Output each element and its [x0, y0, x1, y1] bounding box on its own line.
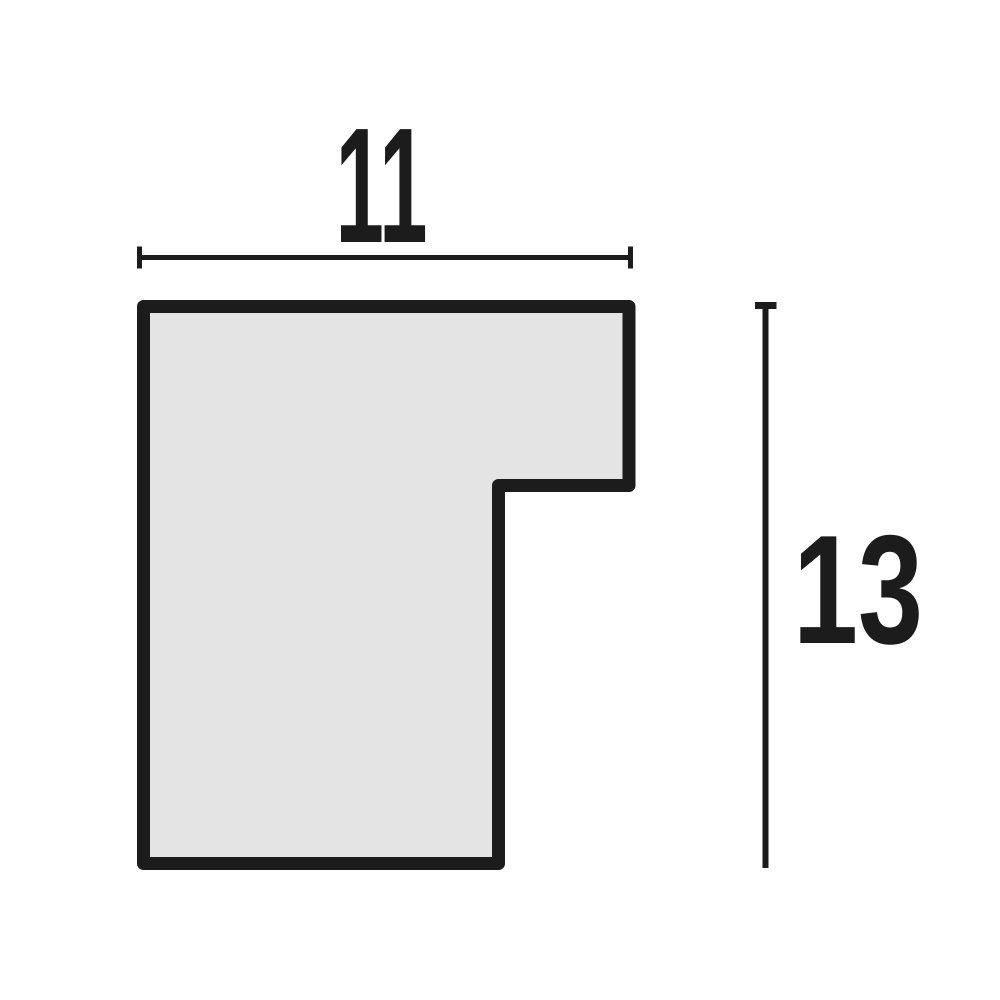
height-dimension: 13 — [755, 306, 923, 869]
height-dimension-label: 13 — [793, 503, 923, 676]
profile-cross-section-shape — [144, 307, 630, 864]
moulding-profile-diagram: 11 13 — [0, 0, 1000, 1000]
width-dimension: 11 — [137, 94, 633, 277]
width-dimension-label: 11 — [336, 94, 428, 277]
diagram-canvas: 11 13 — [0, 0, 1000, 1000]
